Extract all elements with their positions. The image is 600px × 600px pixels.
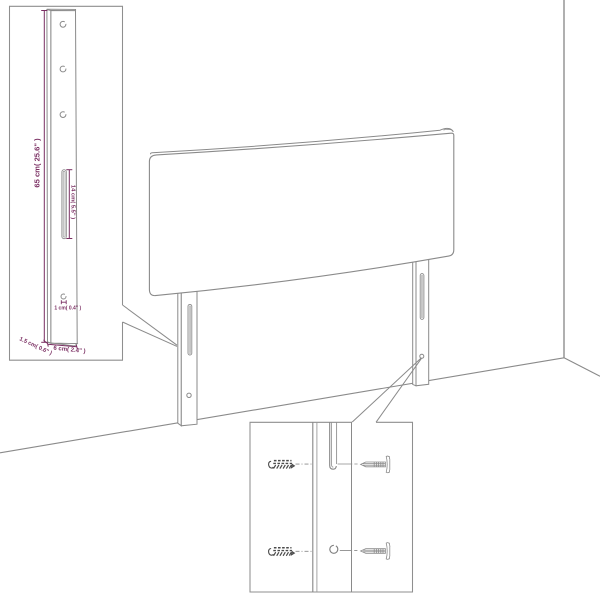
svg-text:14 cm( 5.5" ): 14 cm( 5.5" )	[69, 185, 75, 219]
svg-text:1 cm( 0.4" ): 1 cm( 0.4" )	[54, 306, 81, 312]
svg-text:65 cm( 25.6" ): 65 cm( 25.6" )	[32, 138, 41, 188]
